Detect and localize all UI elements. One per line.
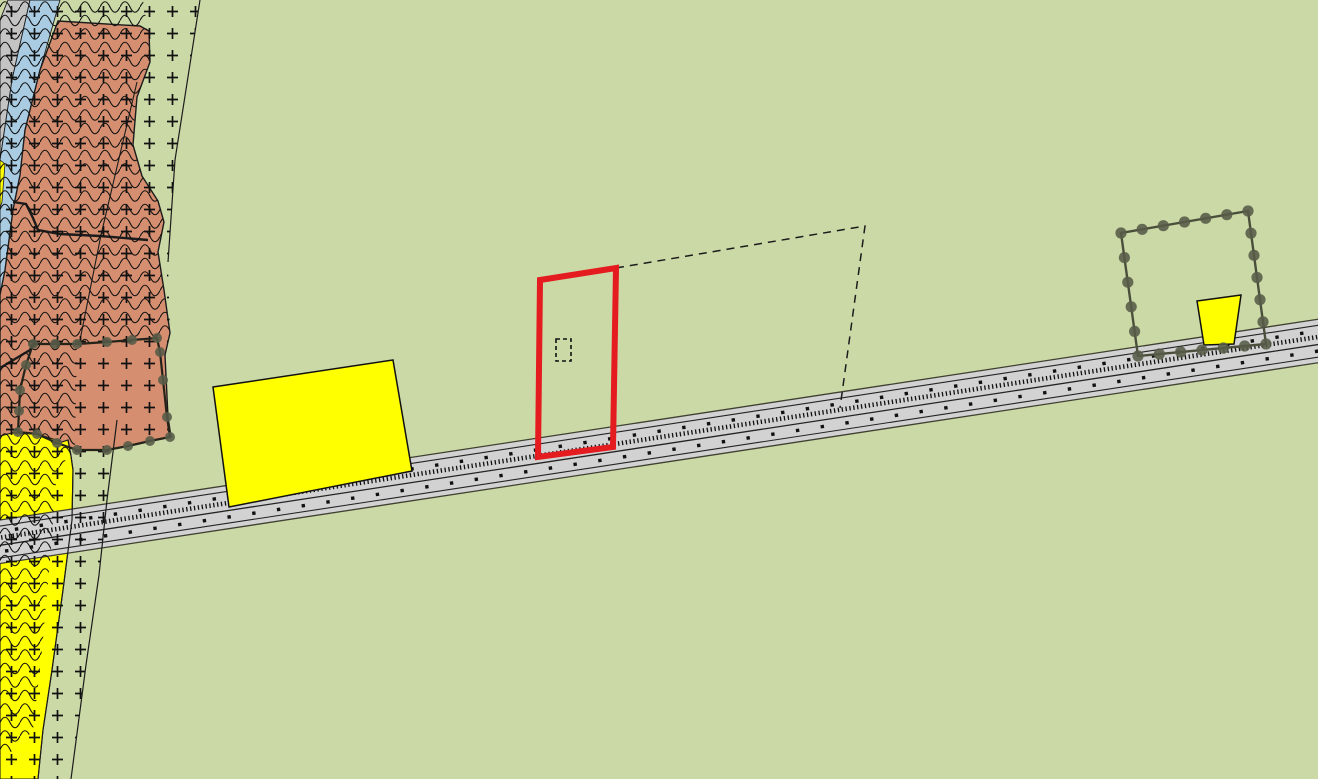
vertex-dot[interactable]: [162, 412, 172, 422]
vertex-dot[interactable]: [1122, 277, 1133, 288]
vertex-dot[interactable]: [1260, 338, 1271, 349]
vertex-dot[interactable]: [152, 333, 162, 343]
vertex-dot[interactable]: [1126, 301, 1137, 312]
vertex-dot[interactable]: [52, 438, 62, 448]
map-canvas[interactable]: [0, 0, 1318, 779]
vertex-dot[interactable]: [165, 432, 175, 442]
vertex-dot[interactable]: [28, 339, 38, 349]
vertex-dot[interactable]: [32, 429, 42, 439]
vertex-dot[interactable]: [102, 337, 112, 347]
vertex-dot[interactable]: [155, 347, 165, 357]
vertex-dot[interactable]: [1137, 224, 1148, 235]
vertex-dot[interactable]: [1254, 294, 1265, 305]
vertex-dot[interactable]: [1257, 316, 1268, 327]
vertex-dot[interactable]: [1248, 250, 1259, 261]
map-viewport[interactable]: [0, 0, 1318, 779]
vertex-dot[interactable]: [1196, 344, 1207, 355]
vertex-dot[interactable]: [1115, 227, 1126, 238]
vertex-dot[interactable]: [21, 360, 31, 370]
vertex-dot[interactable]: [102, 445, 112, 455]
vertex-dot[interactable]: [127, 335, 137, 345]
vertex-dot[interactable]: [1200, 213, 1211, 224]
vertex-dot[interactable]: [1132, 350, 1143, 361]
vertex-dot[interactable]: [1242, 205, 1253, 216]
vertex-dot[interactable]: [13, 427, 23, 437]
vertex-dot[interactable]: [1119, 252, 1130, 263]
vertex-dot[interactable]: [145, 436, 155, 446]
vertex-dot[interactable]: [50, 339, 60, 349]
vertex-dot[interactable]: [72, 339, 82, 349]
building-yellow-small[interactable]: [1197, 295, 1241, 345]
vertex-dot[interactable]: [1239, 340, 1250, 351]
vertex-dot[interactable]: [15, 385, 25, 395]
vertex-dot[interactable]: [1245, 228, 1256, 239]
vertex-dot[interactable]: [1179, 216, 1190, 227]
vertex-dot[interactable]: [1251, 272, 1262, 283]
vertex-dot[interactable]: [14, 406, 24, 416]
vertex-dot[interactable]: [1175, 346, 1186, 357]
vertex-dot[interactable]: [72, 445, 82, 455]
vertex-dot[interactable]: [1221, 209, 1232, 220]
vertex-dot[interactable]: [123, 441, 133, 451]
vertex-dot[interactable]: [1154, 348, 1165, 359]
vertex-dot[interactable]: [1158, 220, 1169, 231]
vertex-dot[interactable]: [1129, 326, 1140, 337]
vertex-dot[interactable]: [158, 375, 168, 385]
vertex-dot[interactable]: [1218, 342, 1229, 353]
